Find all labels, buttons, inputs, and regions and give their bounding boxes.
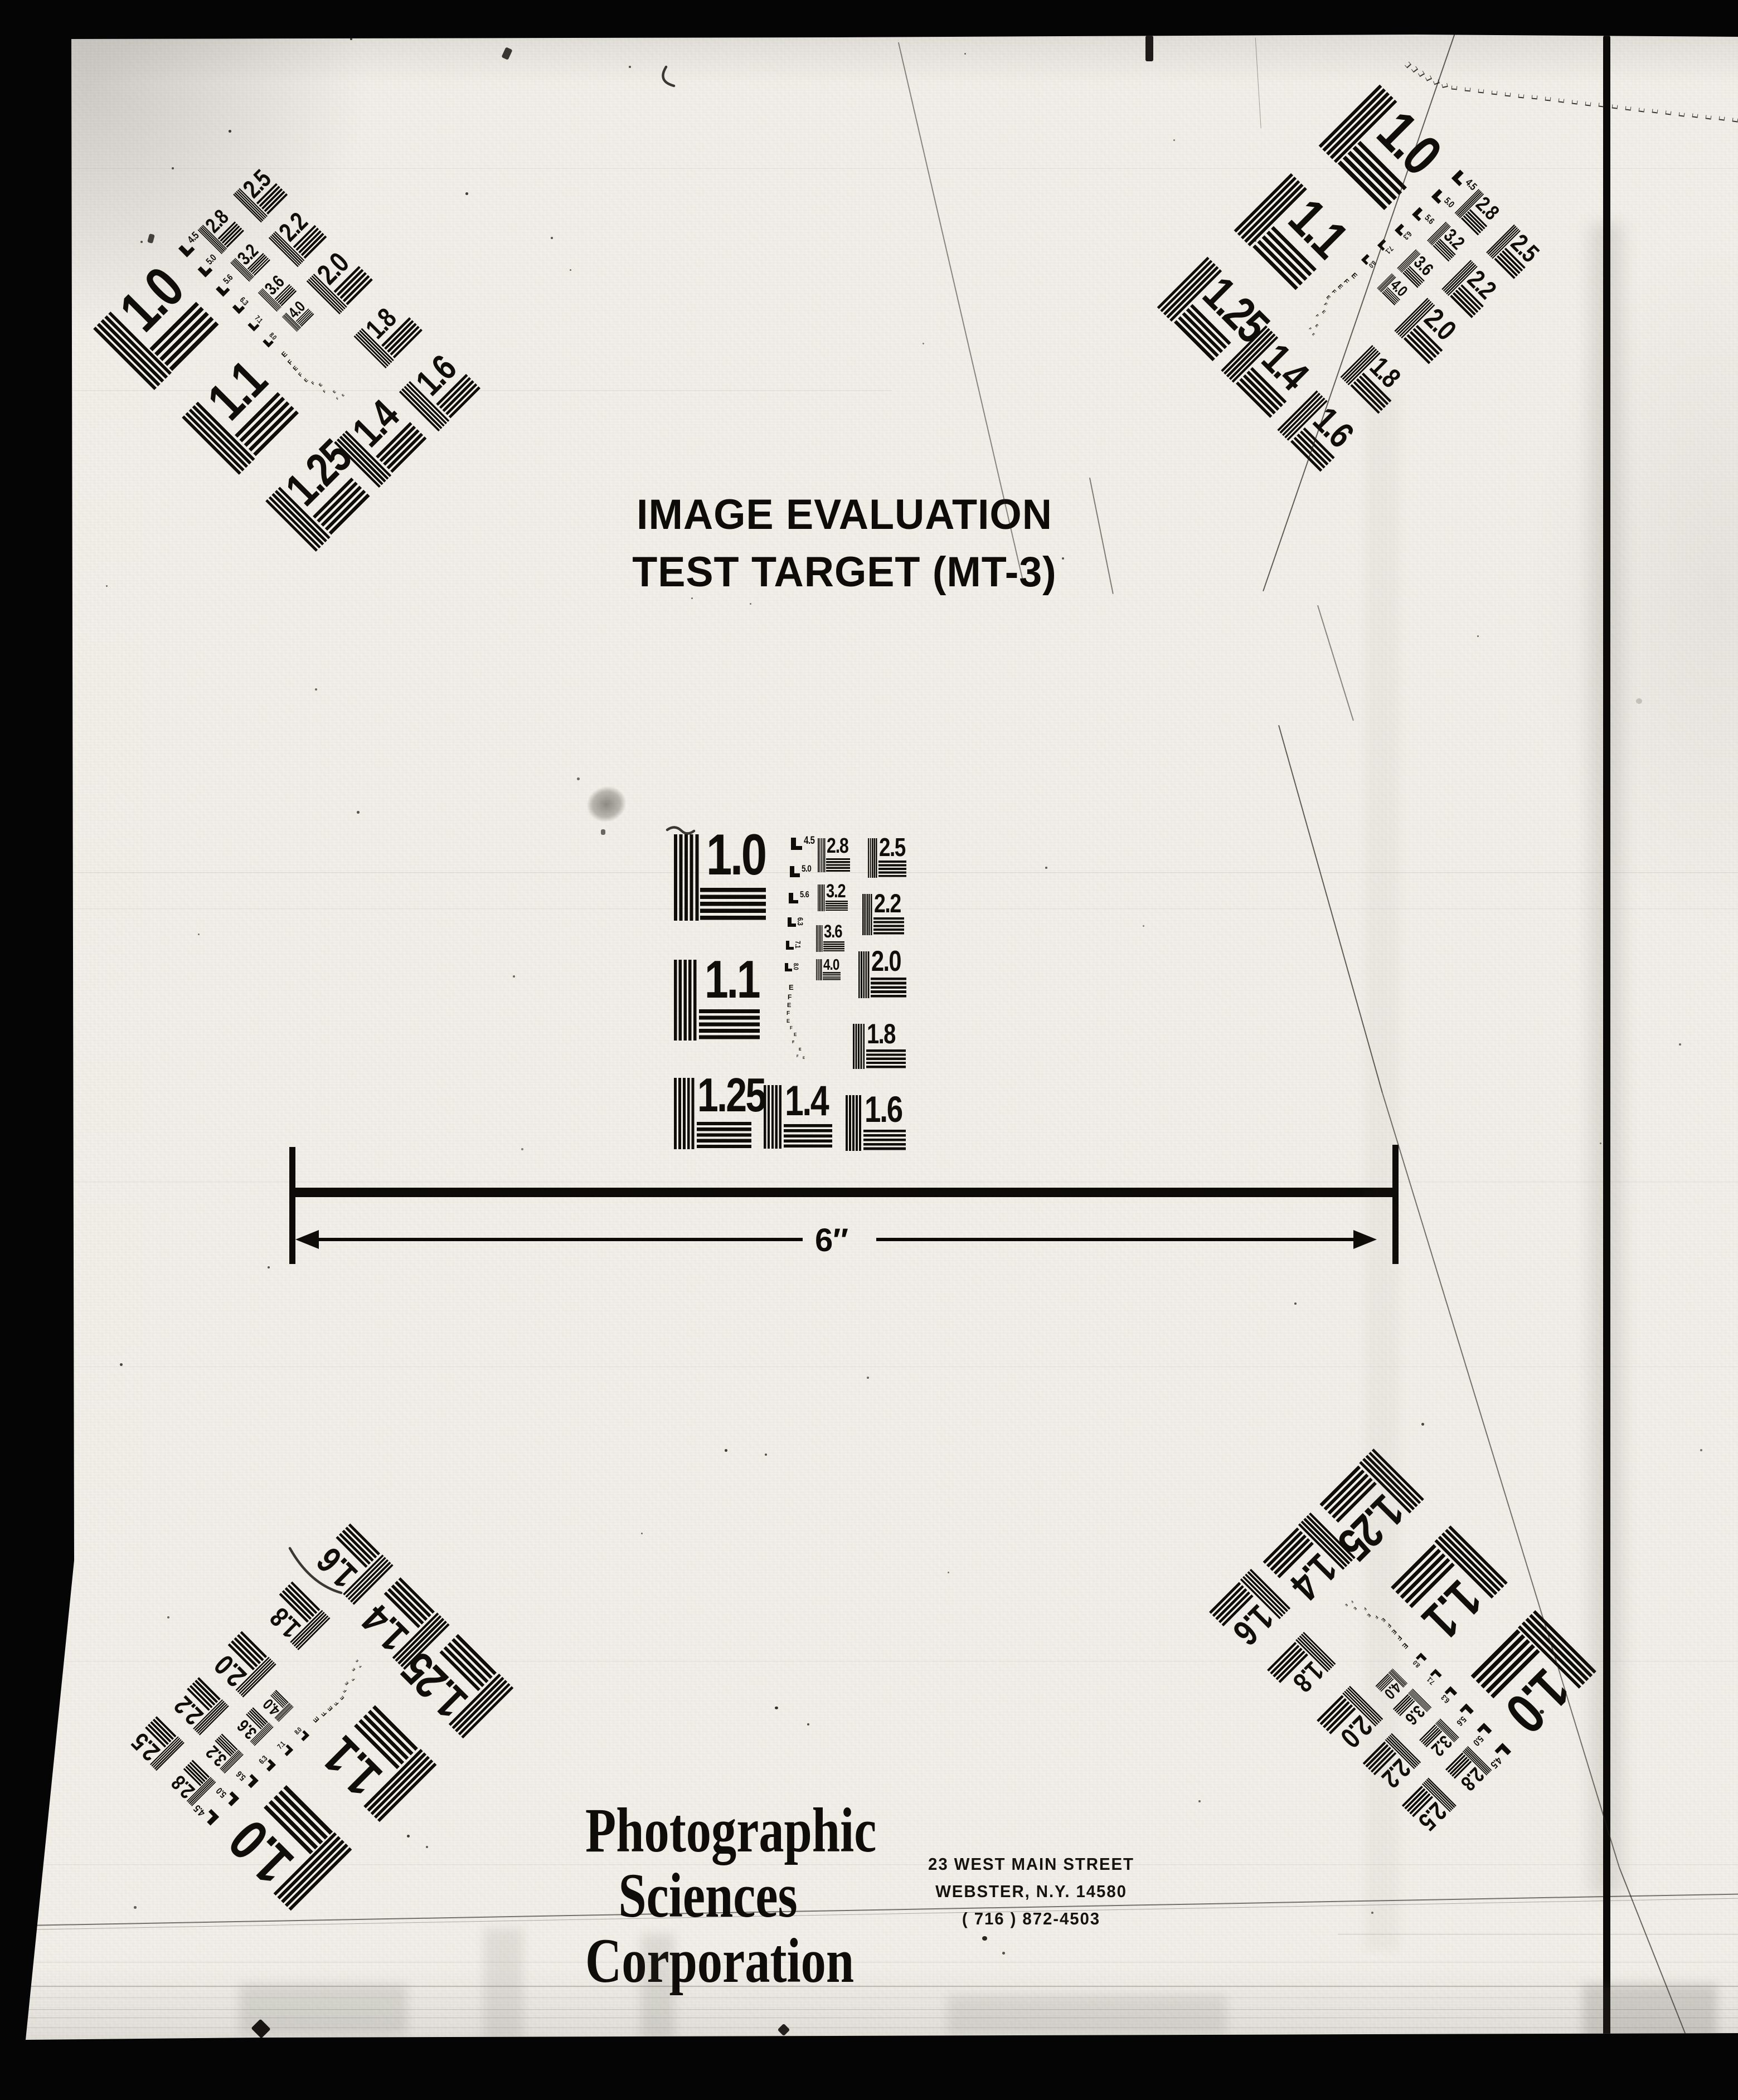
pattern-letter-E: E — [1311, 333, 1315, 337]
dust-speckle — [1143, 925, 1144, 927]
pattern-letter-F: F — [310, 381, 315, 386]
film-edge-tick — [1505, 92, 1511, 96]
film-edge-tick — [1545, 96, 1551, 101]
pattern-element-label: 5.6 — [223, 274, 235, 286]
stripe-block-horizontal — [826, 901, 848, 911]
dust-speckle — [577, 777, 580, 780]
pattern-letter-F: F — [1331, 289, 1337, 295]
pattern-element-label: 1.8 — [867, 1023, 895, 1045]
film-edge-tick — [1441, 83, 1448, 88]
company-line-3: Corporation — [585, 1928, 831, 1994]
scan-line — [0, 1997, 1738, 1998]
pattern-element-label: 2.8 — [827, 838, 848, 854]
dust-speckle — [807, 1723, 809, 1725]
film-edge-tick — [1418, 71, 1425, 77]
pattern-letter-E: E — [303, 377, 309, 383]
stripe-block-horizontal — [697, 1122, 751, 1149]
film-edge-tick — [1599, 103, 1605, 107]
pattern-element-label: 5.0 — [216, 1787, 228, 1799]
stripe-block-horizontal — [784, 1124, 832, 1149]
pattern-letter-E: E — [342, 393, 346, 397]
dust-speckle — [1002, 1952, 1005, 1955]
pattern-letter-F: F — [359, 1664, 363, 1668]
stripe-block-horizontal — [790, 873, 800, 877]
smudge-streak — [948, 1995, 1226, 2034]
film-edge-tick — [1639, 108, 1645, 112]
stripe-block-horizontal — [203, 268, 213, 278]
dust-speckle — [1045, 867, 1047, 869]
company-line-1: Photographic — [585, 1798, 831, 1863]
pattern-letter-E: E — [280, 350, 288, 358]
film-edge-tick — [1692, 113, 1698, 118]
film-edge-tick — [1652, 109, 1658, 113]
pattern-element-label: 6.3 — [1441, 1694, 1451, 1704]
pattern-letter-E: E — [789, 984, 794, 991]
stripe-block-vertical — [764, 1085, 782, 1149]
pattern-letter-E: E — [803, 1057, 805, 1060]
dust-speckle — [1679, 1043, 1681, 1046]
pattern-element-label: 5.6 — [800, 892, 809, 899]
film-edge-tick — [1433, 80, 1440, 85]
scan-line — [0, 2009, 1738, 2010]
dust-speckle — [1294, 1302, 1297, 1305]
dust-speckle — [551, 237, 553, 239]
stripe-block-vertical — [853, 1024, 865, 1069]
pattern-element-label: 5.0 — [802, 865, 811, 873]
scan-line — [0, 168, 1738, 169]
title-line-1: IMAGE EVALUATION — [631, 486, 1058, 543]
film-edge-tick — [1679, 112, 1685, 116]
stripe-block-horizontal — [791, 846, 802, 850]
scan-line — [0, 1182, 1738, 1182]
stripe-block-horizontal — [823, 972, 841, 980]
dust-speckle — [629, 66, 631, 68]
dust-speckle — [268, 1266, 270, 1268]
hair-fiber — [667, 827, 694, 833]
dust-speckle — [1421, 1423, 1424, 1426]
dust-speckle — [725, 1449, 727, 1452]
film-fold-line — [1603, 35, 1610, 2041]
scale-thick-bar — [289, 1188, 1399, 1197]
pattern-letter-E: E — [1321, 309, 1326, 314]
pattern-element-label: 7.1 — [254, 315, 263, 324]
scan-line — [0, 1661, 1738, 1661]
hair-fiber — [663, 67, 674, 86]
pattern-element-label: 4.5 — [1489, 1756, 1503, 1769]
dust-speckle — [1173, 139, 1175, 141]
dust-speckle — [51, 477, 55, 480]
dust-speckle — [641, 1533, 643, 1534]
pattern-element-label: 8.0 — [268, 332, 276, 341]
pattern-letter-F: F — [351, 1677, 356, 1681]
stripe-block-vertical — [674, 1078, 695, 1149]
pattern-element-label: 3.6 — [824, 925, 842, 939]
dust-speckle — [659, 21, 662, 24]
pattern-element-label: 7.1 — [277, 1741, 287, 1751]
pattern-letter-E: E — [339, 1695, 346, 1701]
scan-line — [0, 1367, 1738, 1367]
dust-speckle — [368, 1772, 370, 1775]
pattern-element-label: 4.0 — [823, 959, 839, 971]
stripe-block-horizontal — [184, 246, 195, 257]
smudge-streak — [1366, 390, 1399, 1951]
dust-speckle — [106, 585, 108, 587]
pattern-letter-E: E — [799, 1048, 802, 1052]
pattern-letter-F: F — [1343, 278, 1351, 285]
scale-end-bar-left — [289, 1147, 295, 1264]
film-edge-tick — [1666, 110, 1672, 115]
dust-speckle — [867, 1377, 869, 1379]
film-edge-tick — [1411, 66, 1418, 73]
resolution-pattern-top-left: 1.01.11.251.41.62.52.22.01.82.83.23.64.0… — [93, 99, 548, 554]
dust-speckle — [407, 1835, 410, 1837]
film-edge-tick — [1585, 101, 1591, 106]
pattern-element-label: 2.2 — [874, 893, 901, 914]
pattern-letter-F: F — [334, 1700, 340, 1706]
stripe-block-vertical — [816, 959, 822, 980]
stripe-block-vertical — [674, 834, 700, 921]
film-edge-tick — [1732, 118, 1738, 122]
pattern-element-label: 5.6 — [1455, 1715, 1467, 1727]
dust-speckle — [424, 29, 426, 32]
pattern-element-label: 4.5 — [804, 837, 814, 845]
ink-blot — [501, 47, 512, 60]
arrowhead-left-icon — [295, 1230, 319, 1249]
company-name: Photographic Sciences Corporation — [585, 1798, 831, 1994]
dust-speckle — [1477, 635, 1479, 637]
stripe-block-horizontal — [871, 978, 906, 998]
film-edge-tick — [1425, 75, 1432, 81]
company-address: 23 WEST MAIN STREET WEBSTER, N.Y. 14580 … — [915, 1850, 1148, 1932]
dust-speckle — [140, 241, 143, 243]
stripe-block-horizontal — [785, 969, 792, 971]
pattern-element-label: 4.5 — [1464, 178, 1477, 191]
scan-line — [0, 872, 1738, 873]
stripe-block-vertical — [862, 894, 872, 935]
dust-speckle — [765, 1454, 767, 1456]
pattern-letter-E: E — [312, 1715, 321, 1724]
stripe-block-horizontal — [866, 1049, 906, 1069]
dust-speckle — [964, 53, 966, 55]
pattern-letter-E: E — [787, 1019, 790, 1024]
dust-speckle — [1198, 1800, 1201, 1802]
pattern-element-label: 5.0 — [1472, 1734, 1484, 1747]
film-edge-tick — [1518, 94, 1525, 98]
stripe-block-horizontal — [823, 941, 844, 952]
pattern-element-label: 5.0 — [205, 254, 217, 266]
pattern-letter-E: E — [318, 382, 323, 387]
dust-speckle — [513, 975, 515, 978]
scratch-line — [1317, 605, 1354, 721]
pattern-element-label: 5.6 — [236, 1770, 247, 1781]
film-edge-tick — [1572, 100, 1578, 104]
pattern-letter-E: E — [1352, 1606, 1357, 1610]
dust-speckle — [315, 688, 317, 691]
scratch-line — [1089, 478, 1114, 594]
stripe-block-horizontal — [789, 900, 798, 903]
pattern-letter-E: E — [794, 1033, 797, 1037]
dust-speckle — [120, 1363, 123, 1366]
dust-speckle — [426, 1846, 428, 1848]
pattern-letter-E: E — [1326, 295, 1332, 301]
pattern-letter-F: F — [287, 358, 294, 366]
film-edge-tick — [1532, 95, 1538, 99]
pattern-element-label: 3.2 — [826, 884, 846, 899]
pattern-letter-E: E — [292, 365, 299, 372]
dust-speckle — [229, 130, 231, 133]
ink-blot — [778, 2024, 790, 2036]
dust-speckle — [775, 1707, 778, 1709]
dust-speckle — [1137, 29, 1140, 32]
dust-speckle — [198, 934, 200, 935]
pattern-element-label: 5.0 — [1443, 196, 1455, 208]
pattern-letter-E: E — [344, 1680, 349, 1685]
pattern-element-label: 6.3 — [258, 1755, 268, 1765]
film-edge-tick — [1625, 106, 1632, 110]
pattern-element-label: 1.4 — [785, 1085, 828, 1119]
ink-blot — [147, 234, 155, 244]
pattern-letter-E: E — [1401, 1642, 1409, 1650]
scale-arrow-line-right — [876, 1238, 1372, 1241]
stripe-block-vertical — [674, 960, 697, 1041]
pattern-letter-F: F — [792, 1041, 794, 1044]
dust-speckle — [350, 38, 352, 40]
stripe-block-vertical — [818, 838, 826, 872]
pattern-letter-F: F — [788, 994, 792, 1000]
stripe-block-horizontal — [699, 1009, 760, 1041]
scale-length-label: 6″ — [815, 1222, 848, 1259]
pattern-letter-F: F — [1323, 302, 1328, 307]
test-target-page: IMAGE EVALUATION TEST TARGET (MT-3) 1.01… — [0, 0, 1738, 2100]
page-title: IMAGE EVALUATION TEST TARGET (MT-3) — [631, 486, 1058, 601]
smudge-streak — [1583, 1984, 1717, 2040]
dust-speckle — [1700, 1449, 1702, 1451]
scan-line — [0, 1864, 1738, 1865]
film-edge-tick — [1451, 86, 1458, 90]
film-edge-tick — [1719, 116, 1725, 120]
stripe-block-vertical — [858, 951, 870, 998]
pattern-letter-E: E — [352, 1667, 356, 1671]
film-edge-tick — [1405, 62, 1411, 69]
stripe-block-horizontal — [786, 947, 794, 950]
scan-line — [0, 2018, 1738, 2018]
dust-speckle — [750, 603, 751, 605]
fingerprint-smudge — [575, 775, 638, 834]
pattern-letter-F: F — [797, 1055, 799, 1058]
pattern-element-label: 6.3 — [239, 296, 249, 307]
stripe-block-horizontal — [863, 1130, 906, 1151]
pattern-element-label: 1.6 — [865, 1095, 902, 1124]
pattern-element-label: 7.1 — [1385, 245, 1394, 255]
pattern-element-label: 1.1 — [705, 959, 759, 1002]
dust-speckle — [1371, 1912, 1373, 1914]
stripe-block-vertical — [818, 884, 825, 911]
ink-blot — [1145, 36, 1153, 61]
stripe-block-horizontal — [700, 888, 766, 921]
pattern-element-label: 8.0 — [294, 1727, 303, 1736]
film-edge-tick — [1706, 115, 1712, 119]
ink-blot — [601, 829, 605, 835]
dust-speckle — [465, 192, 468, 195]
dust-speckle — [570, 269, 571, 271]
pattern-letter-E: E — [787, 1003, 791, 1009]
film-edge-tick — [1465, 87, 1471, 92]
pattern-letter-F: F — [343, 1688, 348, 1693]
pattern-letter-F: F — [336, 397, 340, 401]
pattern-letter-E: E — [1350, 271, 1358, 280]
title-line-2: TEST TARGET (MT-3) — [631, 543, 1058, 601]
scan-line — [0, 908, 1738, 909]
scan-line — [0, 1962, 1738, 1962]
dust-speckle — [691, 597, 693, 599]
scanned-film-frame: IMAGE EVALUATION TEST TARGET (MT-3) 1.01… — [0, 0, 1738, 2100]
pattern-letter-F: F — [321, 1710, 328, 1718]
pattern-letter-F: F — [787, 1011, 790, 1017]
pattern-letter-E: E — [327, 1704, 334, 1712]
pattern-letter-E: E — [1344, 1603, 1348, 1607]
stripe-block-horizontal — [788, 923, 796, 927]
dust-speckle — [357, 811, 360, 814]
pattern-element-label: 7.1 — [794, 941, 800, 948]
pattern-element-label: 6.3 — [797, 917, 803, 925]
dust-speckle — [948, 1572, 949, 1573]
resolution-pattern-center: 1.01.11.251.41.62.52.22.01.82.83.23.64.0… — [674, 834, 1000, 1152]
pattern-letter-E: E — [1314, 324, 1319, 328]
pattern-letter-F: F — [298, 372, 304, 378]
pattern-element-label: 2.5 — [879, 837, 905, 858]
address-city: WEBSTER, N.Y. 14580 — [915, 1878, 1148, 1905]
stripe-block-horizontal — [873, 917, 904, 935]
pattern-element-label: 1.0 — [706, 832, 765, 878]
pattern-element-label: 1.25 — [697, 1077, 765, 1115]
dust-speckle — [543, 33, 547, 36]
dust-speckle — [134, 1906, 137, 1909]
film-edge-tick — [1478, 89, 1484, 93]
stripe-block-vertical — [846, 1095, 862, 1151]
scan-line-slanted — [0, 1893, 1738, 1927]
dust-speckle — [1636, 698, 1642, 704]
pattern-element-label: 4.5 — [193, 1804, 206, 1817]
dust-speckle — [923, 343, 924, 344]
smudge-streak — [641, 1934, 674, 2040]
ink-blot — [674, 1961, 679, 1990]
pattern-element-label: 8.0 — [793, 963, 798, 970]
scan-line — [0, 1986, 1738, 1987]
resolution-pattern-bottom-left: 1.01.11.251.41.62.52.22.01.82.83.23.64.0… — [60, 1456, 516, 1911]
pattern-element-label: 2.0 — [871, 950, 901, 974]
scan-line — [1338, 1934, 1738, 1934]
stripe-block-horizontal — [826, 858, 850, 872]
pattern-letter-E: E — [1336, 284, 1343, 291]
dust-speckle — [982, 1936, 987, 1941]
stripe-block-horizontal — [221, 288, 230, 297]
stripe-block-vertical — [816, 925, 823, 952]
pattern-letter-F: F — [790, 1026, 793, 1030]
pattern-letter-F: F — [1349, 1600, 1353, 1603]
film-edge-tick — [1612, 104, 1618, 109]
pattern-element-label: 6.3 — [1402, 230, 1412, 240]
film-edge-tick — [1492, 90, 1498, 95]
pattern-letter-F: F — [1315, 314, 1319, 318]
pattern-element-label: 5.6 — [1423, 214, 1435, 226]
dust-speckle — [521, 1148, 523, 1150]
dust-speckle — [1062, 557, 1064, 560]
scale-arrow-line-left — [308, 1238, 803, 1241]
scan-line-slanted — [0, 1898, 1738, 1931]
pattern-element-label: 7.1 — [1426, 1676, 1436, 1685]
scratch-line — [1255, 38, 1261, 129]
dust-speckle — [1254, 240, 1256, 242]
dust-speckle — [1600, 1143, 1601, 1144]
pattern-element-label: 4.5 — [187, 231, 200, 245]
smudge-streak — [484, 1928, 523, 2040]
pattern-letter-F: F — [1308, 327, 1312, 331]
stripe-block-horizontal — [878, 861, 906, 878]
scan-line — [0, 390, 892, 391]
film-edge-tick — [1559, 98, 1565, 103]
dust-speckle — [167, 1616, 169, 1618]
